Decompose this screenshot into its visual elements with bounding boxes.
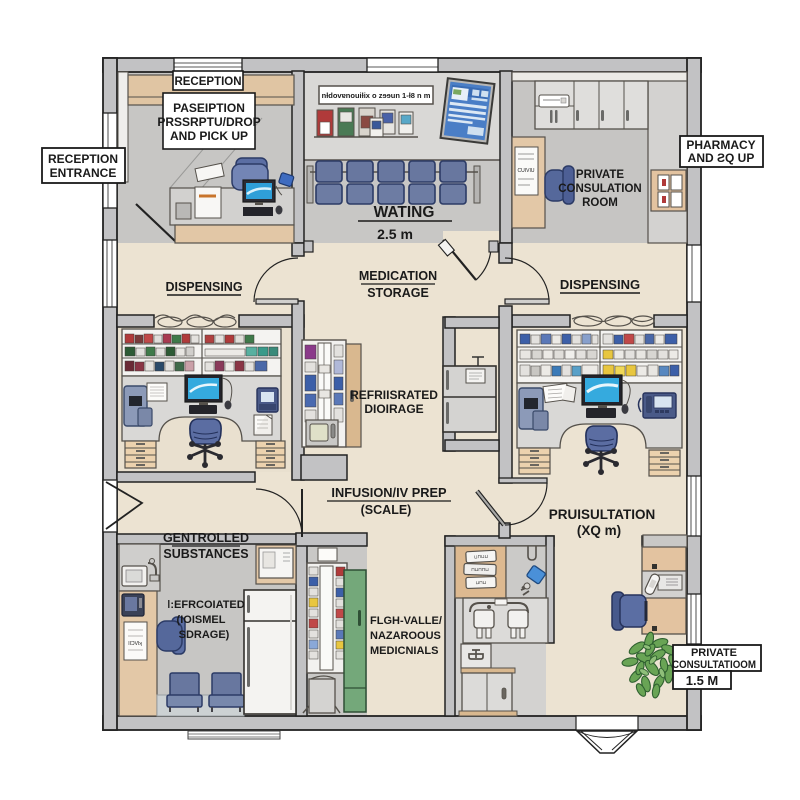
- svg-text:PRIVATE: PRIVATE: [691, 647, 737, 659]
- svg-text:SDRAGE): SDRAGE): [179, 629, 230, 641]
- svg-text:INFUSION/IV PREP: INFUSION/IV PREP: [331, 485, 447, 500]
- svg-text:(XQ m): (XQ m): [577, 523, 621, 538]
- svg-text:MEDICNIALS: MEDICNIALS: [370, 645, 438, 657]
- svg-text:WATING: WATING: [374, 204, 435, 221]
- svg-text:⊓⊔⊓⊓⊔: ⊓⊔⊓⊓⊔: [471, 567, 489, 572]
- svg-text:DISPENSING: DISPENSING: [560, 277, 640, 292]
- svg-text:CONSULTATIOOM: CONSULTATIOOM: [672, 659, 756, 671]
- svg-text:FLGH-VALLE/: FLGH-VALLE/: [370, 615, 442, 627]
- svg-text:nƚdovɐnouiƚix o zɘɘun 1-ƚ8 n m: nƚdovɐnouiƚix o zɘɘun 1-ƚ8 n m: [322, 91, 431, 100]
- svg-text:STORAGE: STORAGE: [367, 286, 429, 300]
- svg-text:(IOISMEL: (IOISMEL: [177, 614, 226, 626]
- svg-text:(SCALE): (SCALE): [361, 503, 412, 517]
- svg-text:NAZAROOUS: NAZAROOUS: [370, 630, 441, 642]
- svg-text:ENTRANCE: ENTRANCE: [50, 166, 117, 180]
- svg-text:AND ƧQ UP: AND ƧQ UP: [688, 151, 755, 165]
- svg-text:1.5 M: 1.5 M: [686, 673, 719, 688]
- svg-text:MEDICATION: MEDICATION: [359, 269, 437, 283]
- svg-text:DISPENSING: DISPENSING: [165, 280, 242, 294]
- svg-text:RECEPTION: RECEPTION: [174, 76, 241, 88]
- svg-text:RECEPTION: RECEPTION: [48, 152, 118, 166]
- svg-text:ǀ:EFRCOIATED: ǀ:EFRCOIATED: [167, 599, 244, 611]
- svg-text:⊔⊓⊔⊔: ⊔⊓⊔⊔: [474, 554, 489, 560]
- svg-text:PASEIPTION: PASEIPTION: [173, 101, 245, 115]
- svg-text:ROOM: ROOM: [582, 197, 618, 209]
- svg-text:CUIVIU: CUIVIU: [518, 168, 535, 174]
- svg-text:GENTROLLED: GENTROLLED: [163, 531, 249, 545]
- svg-text:PHARMACY: PHARMACY: [686, 138, 755, 152]
- svg-text:PRSSRPTU/DROP: PRSSRPTU/DROP: [157, 115, 260, 129]
- svg-text:PRUISULTATION: PRUISULTATION: [549, 507, 656, 522]
- svg-text:⊔⊓⊔: ⊔⊓⊔: [476, 580, 487, 585]
- svg-text:2.5 m: 2.5 m: [377, 226, 413, 242]
- svg-text:SUBSTANCES: SUBSTANCES: [163, 547, 248, 561]
- svg-text:REFRIISRATED: REFRIISRATED: [350, 388, 438, 402]
- svg-text:IIƆVIʞ: IIƆVIʞ: [128, 641, 142, 647]
- svg-text:PRIVATE: PRIVATE: [576, 169, 624, 181]
- svg-text:DIOIRAGE: DIOIRAGE: [364, 402, 423, 416]
- svg-text:CONSULATION: CONSULATION: [558, 183, 641, 195]
- svg-text:AND PICK UP: AND PICK UP: [170, 129, 248, 143]
